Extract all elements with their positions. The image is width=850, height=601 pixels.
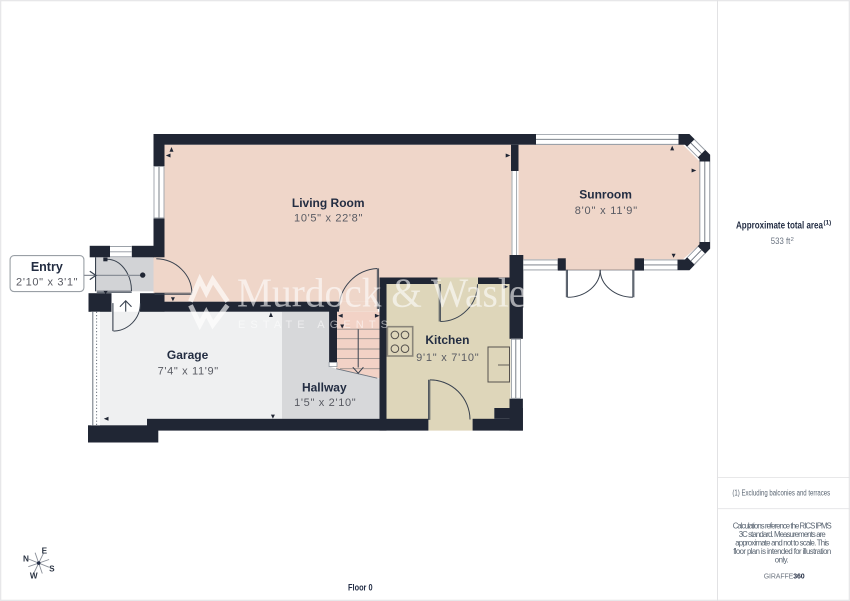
svg-text:Entry: Entry	[31, 260, 63, 274]
svg-text:W: W	[30, 572, 38, 581]
svg-text:S: S	[49, 564, 55, 573]
svg-text:10'5" x 22'8": 10'5" x 22'8"	[294, 212, 362, 224]
svg-text:Floor 0: Floor 0	[348, 582, 373, 592]
svg-text:Garage: Garage	[167, 348, 209, 362]
svg-text:only.: only.	[775, 556, 789, 565]
svg-text:(1): (1)	[824, 220, 832, 227]
svg-text:Kitchen: Kitchen	[425, 333, 469, 347]
svg-text:2'10" x 3'1": 2'10" x 3'1"	[16, 276, 78, 288]
svg-text:7'4" x 11'9": 7'4" x 11'9"	[158, 365, 219, 377]
svg-text:N: N	[23, 554, 29, 563]
svg-text:Living Room: Living Room	[292, 196, 365, 210]
svg-text:9'1" x 7'10": 9'1" x 7'10"	[416, 352, 479, 364]
svg-text:GIRAFFE360: GIRAFFE360	[764, 573, 805, 580]
svg-text:2: 2	[791, 237, 794, 243]
svg-text:Hallway: Hallway	[302, 381, 347, 395]
svg-text:(1) Excluding balconies and te: (1) Excluding balconies and terraces	[732, 489, 830, 498]
svg-text:Sunroom: Sunroom	[579, 188, 632, 202]
svg-text:E: E	[42, 547, 48, 556]
svg-text:Murdock & Wasley: Murdock & Wasley	[237, 270, 546, 316]
svg-text:8'0" x 11'9": 8'0" x 11'9"	[575, 205, 637, 217]
svg-text:Approximate total area: Approximate total area	[736, 220, 823, 232]
svg-text:533 ft: 533 ft	[771, 236, 791, 246]
svg-text:1'5" x 2'10": 1'5" x 2'10"	[294, 397, 356, 409]
